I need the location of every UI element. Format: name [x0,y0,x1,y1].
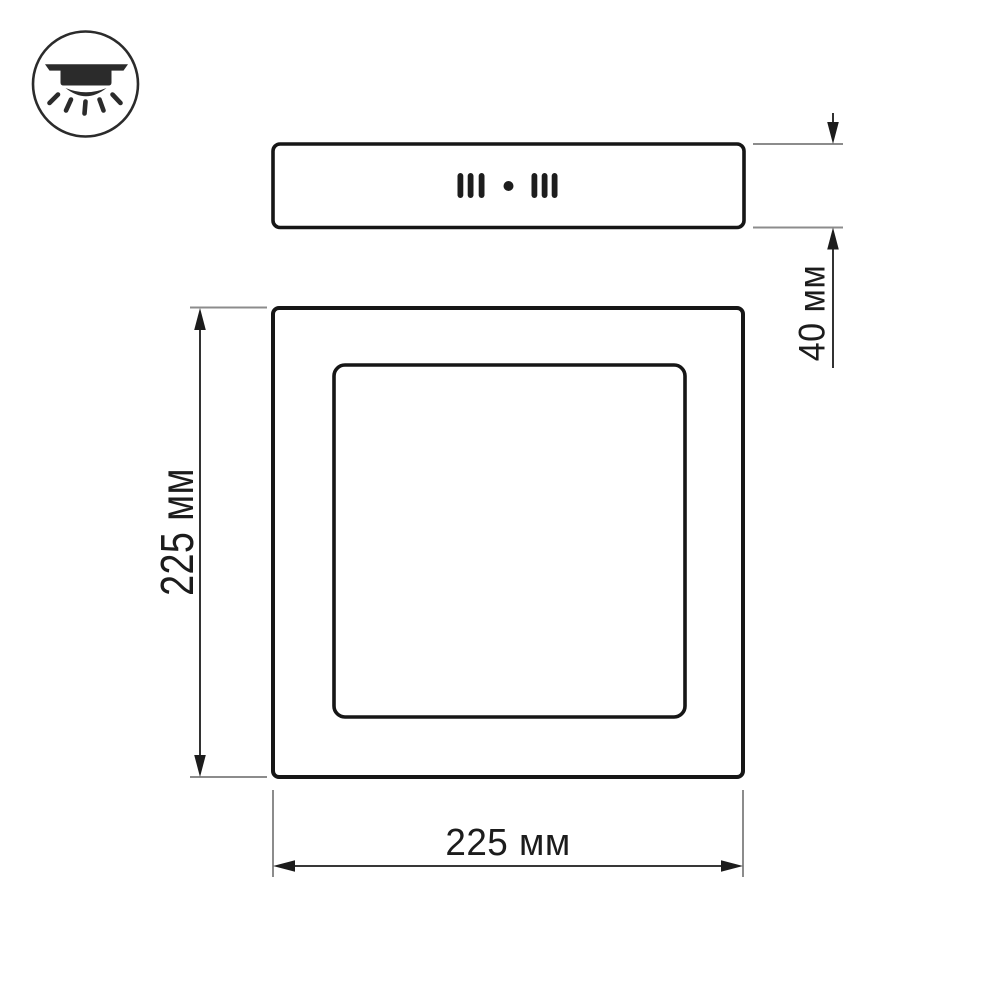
dimension-label-width: 225 мм [445,824,570,862]
front-inner-diffuser [334,365,685,717]
arrowhead-down [194,755,206,777]
vent-slot [542,173,548,198]
arrowhead-left [273,860,295,872]
dimension-label-thickness: 40 мм [794,265,831,361]
panel-side-view [273,144,744,228]
arrowhead-up [194,308,206,330]
vent-slots-right [532,173,558,198]
center-dot [504,181,514,191]
panel-front-view [273,308,743,777]
vent-slot [468,173,474,198]
vent-slot [458,173,464,198]
vent-slots-left [458,173,485,198]
vent-slot [532,173,538,198]
surface-mount-downlight-icon [33,32,138,137]
icon-ceiling-flange [45,64,128,70]
light-ray-icon [85,102,86,114]
arrowhead-down [827,122,839,144]
technical-drawing-canvas: 225 мм 40 мм 225 мм [0,0,1000,1000]
vent-slot [479,173,485,198]
arrowhead-right [721,860,743,872]
vent-slot [552,173,558,198]
dimension-label-height: 225 мм [154,468,200,596]
icon-lamp-body [61,70,112,86]
